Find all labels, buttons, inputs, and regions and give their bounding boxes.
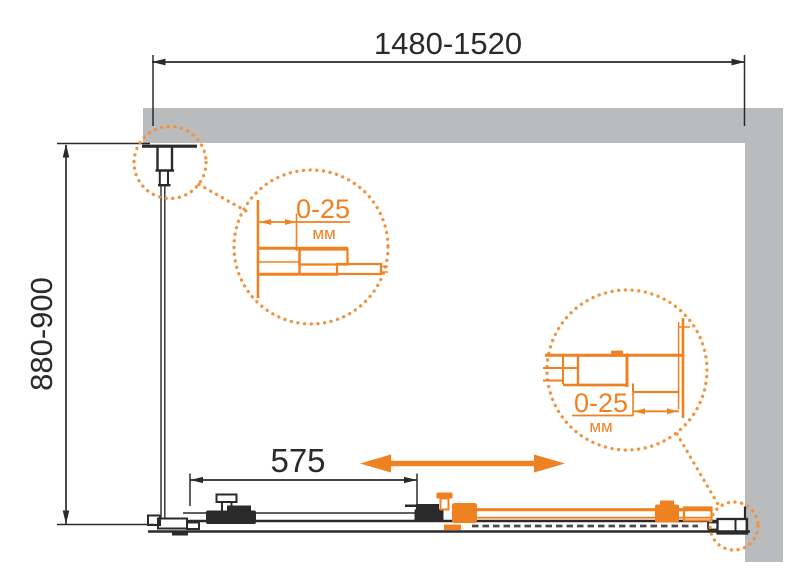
- door-roller-left: [452, 503, 477, 523]
- wall-profile-detail-right: 0-25 мм: [543, 318, 690, 436]
- diagram-canvas: 1480-1520 880-900: [0, 0, 800, 576]
- wall-right: [745, 143, 783, 562]
- width-range-label: 1480-1520: [374, 26, 522, 61]
- fixed-side-panel: [142, 146, 197, 518]
- adjustment-value-left: 0-25: [296, 194, 350, 224]
- wall-top: [143, 108, 783, 143]
- arrowhead-right: [404, 477, 417, 483]
- door-roller-right: [655, 505, 679, 523]
- callout-leader-right: [677, 434, 719, 506]
- left-height-dimension: 880-900: [24, 144, 154, 525]
- roller-left: [206, 495, 256, 525]
- height-range-label: 880-900: [24, 277, 59, 391]
- door-handle-post: [441, 499, 449, 510]
- door-guide-tab: [444, 525, 461, 531]
- door-width-label: 575: [270, 442, 325, 479]
- door-width-dimension: 575: [190, 442, 417, 506]
- arrowhead-top: [63, 144, 70, 158]
- adjustment-unit-left: мм: [312, 224, 335, 243]
- top-wall-bracket: [142, 146, 197, 185]
- slide-direction-arrow-icon: [360, 455, 565, 473]
- adjustment-unit-right: мм: [589, 417, 612, 436]
- shower-enclosure-dimension-diagram: 1480-1520 880-900: [0, 0, 800, 576]
- callout-leader-left: [199, 185, 246, 212]
- arrowhead-left: [152, 59, 166, 66]
- wall-profile-detail-left: 0-25 мм: [258, 194, 388, 298]
- arrowhead-bottom: [63, 511, 70, 525]
- adjustment-value-right: 0-25: [574, 388, 628, 418]
- arrowhead-right: [732, 59, 746, 66]
- arrowhead-left: [190, 477, 203, 483]
- sliding-door-panel: [437, 493, 713, 531]
